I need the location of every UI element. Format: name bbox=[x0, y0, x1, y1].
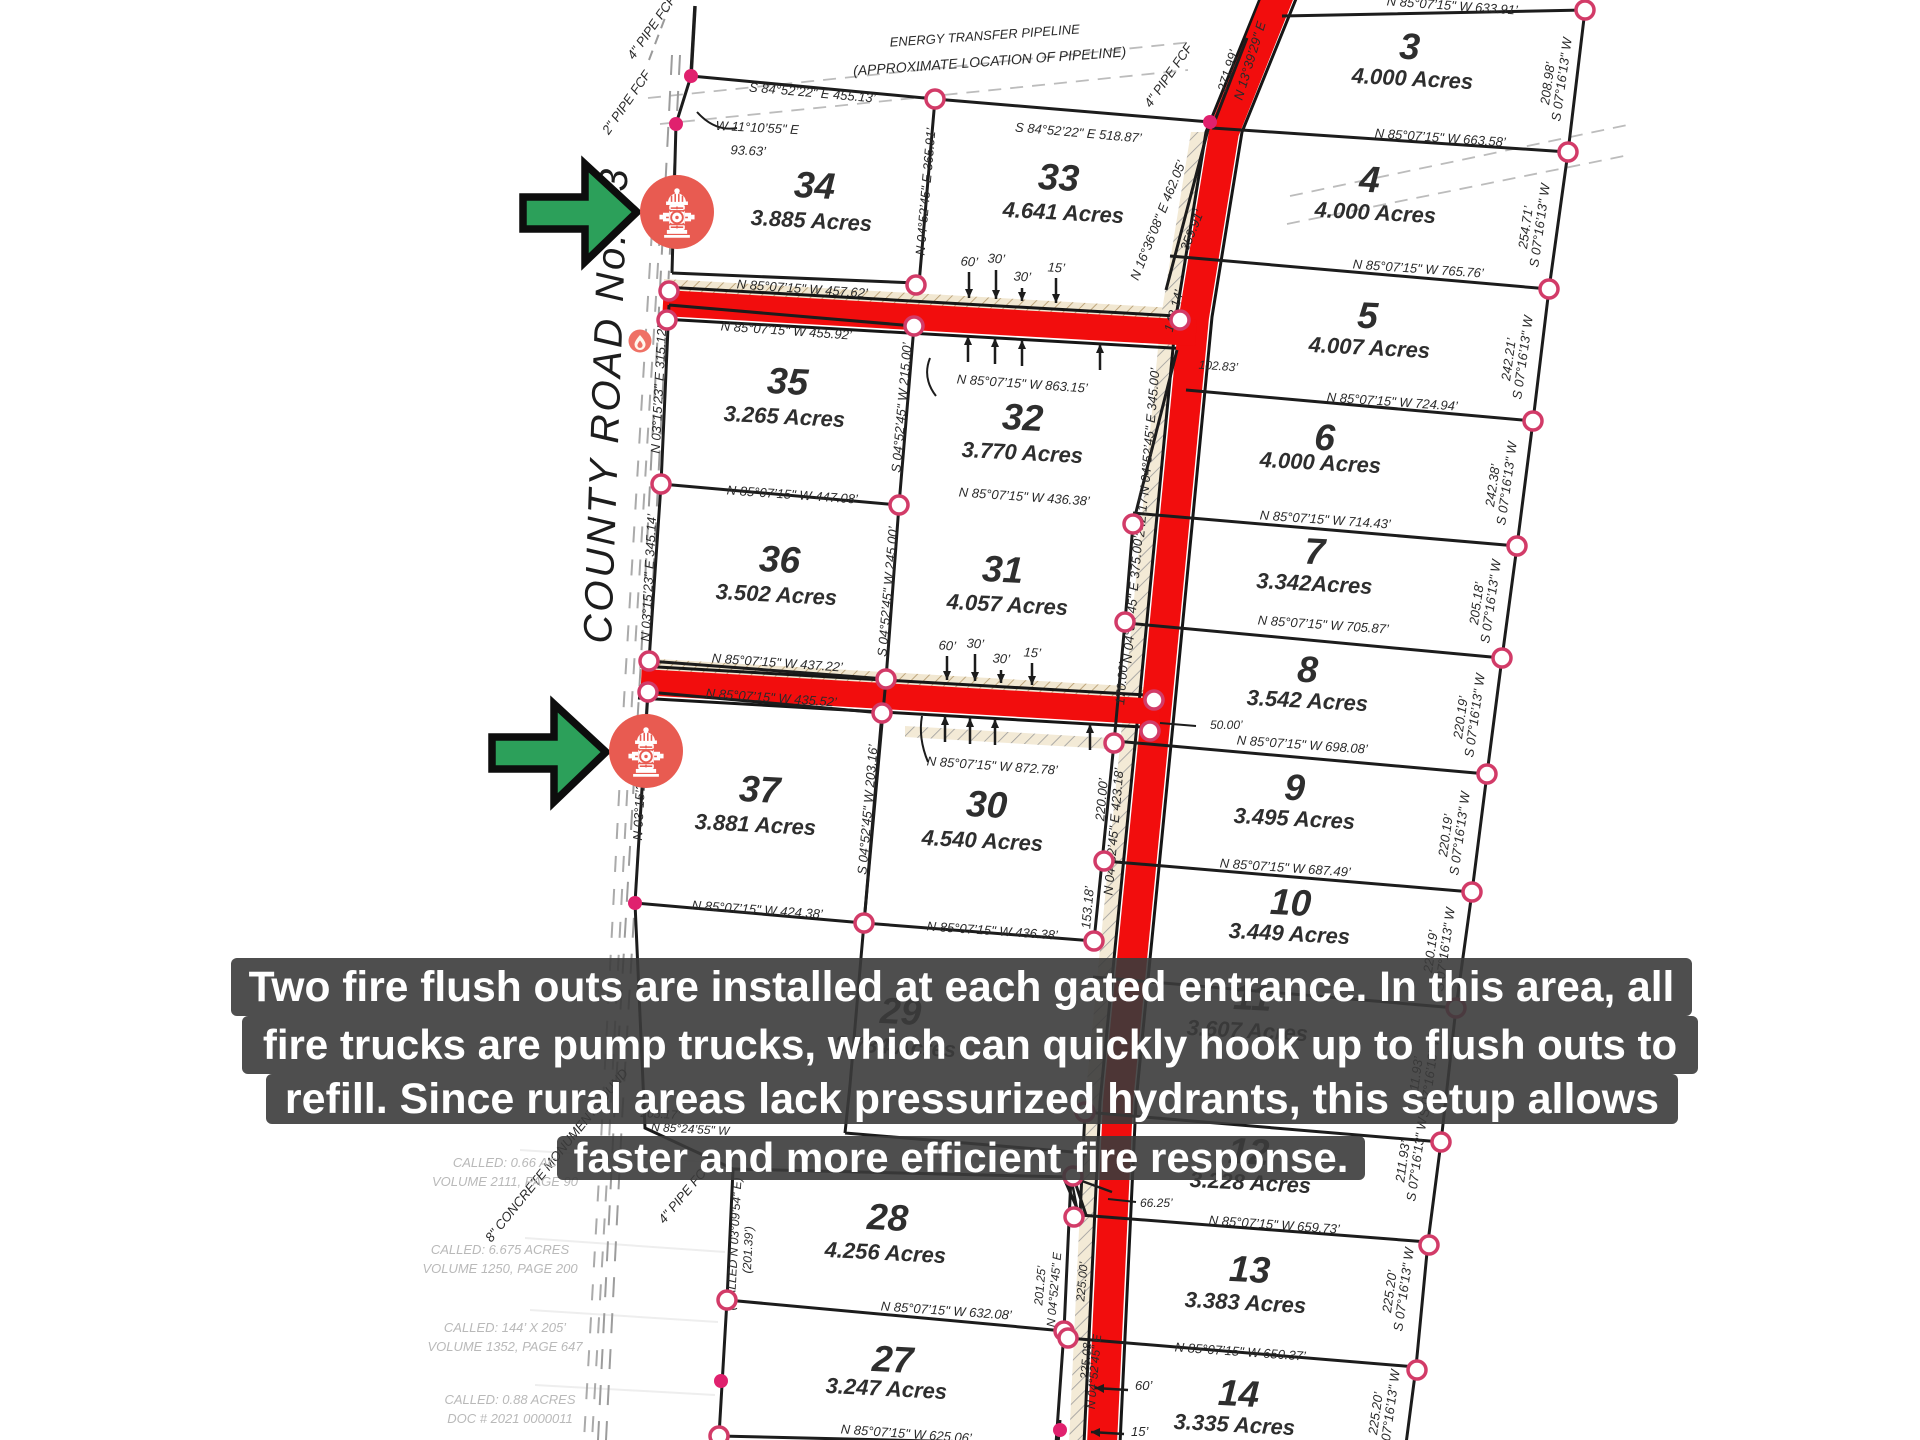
svg-text:34: 34 bbox=[793, 164, 836, 207]
svg-text:VOLUME 2111, PAGE 90: VOLUME 2111, PAGE 90 bbox=[432, 1174, 579, 1189]
svg-text:102.83’: 102.83’ bbox=[1198, 358, 1239, 375]
svg-text:CALLED: 0.66 AC: CALLED: 0.66 AC bbox=[453, 1155, 558, 1170]
svg-text:60’: 60’ bbox=[938, 637, 957, 653]
svg-text:36: 36 bbox=[758, 538, 802, 581]
svg-text:30’: 30’ bbox=[966, 635, 985, 651]
svg-text:35: 35 bbox=[766, 360, 811, 403]
svg-text:VOLUME 1250, PAGE 200: VOLUME 1250, PAGE 200 bbox=[422, 1261, 578, 1276]
svg-text:CALLED: 0.88 ACRES: CALLED: 0.88 ACRES bbox=[444, 1392, 575, 1407]
svg-text:DOC # 2021 0000011: DOC # 2021 0000011 bbox=[447, 1411, 573, 1426]
svg-text:15’: 15’ bbox=[1047, 259, 1066, 275]
svg-text:9: 9 bbox=[1283, 767, 1306, 809]
svg-text:5: 5 bbox=[1356, 295, 1380, 337]
svg-text:15’: 15’ bbox=[1131, 1424, 1149, 1439]
svg-text:14: 14 bbox=[1217, 1372, 1260, 1415]
svg-text:30’: 30’ bbox=[987, 250, 1006, 266]
svg-text:CALLED: 6.675 ACRES: CALLED: 6.675 ACRES bbox=[431, 1242, 570, 1257]
svg-text:faster and more efficient fire: faster and more efficient fire response. bbox=[574, 1134, 1349, 1181]
svg-text:fire trucks are pump trucks, w: fire trucks are pump trucks, which can q… bbox=[263, 1021, 1677, 1068]
svg-text:Two fire flush outs are instal: Two fire flush outs are installed at eac… bbox=[249, 964, 1675, 1011]
svg-text:4: 4 bbox=[1357, 158, 1381, 200]
svg-text:66.25’: 66.25’ bbox=[1140, 1196, 1173, 1210]
svg-text:30’: 30’ bbox=[992, 650, 1011, 666]
svg-text:VOLUME 1352, PAGE 647: VOLUME 1352, PAGE 647 bbox=[427, 1339, 583, 1354]
svg-text:15’: 15’ bbox=[1023, 644, 1042, 660]
svg-text:(201.39’): (201.39’) bbox=[740, 1226, 756, 1274]
svg-text:32: 32 bbox=[1001, 396, 1045, 439]
svg-text:8: 8 bbox=[1296, 649, 1319, 691]
svg-text:93.63’: 93.63’ bbox=[730, 142, 767, 159]
svg-text:60’: 60’ bbox=[960, 253, 979, 269]
svg-text:31: 31 bbox=[981, 548, 1024, 591]
svg-text:33: 33 bbox=[1037, 156, 1081, 199]
svg-text:13: 13 bbox=[1228, 1248, 1272, 1291]
svg-text:CALLED: 144’ X 205’: CALLED: 144’ X 205’ bbox=[444, 1320, 567, 1335]
svg-text:30’: 30’ bbox=[1013, 268, 1032, 284]
svg-text:37: 37 bbox=[738, 768, 784, 811]
svg-text:30: 30 bbox=[965, 783, 1009, 826]
svg-text:10: 10 bbox=[1269, 881, 1313, 924]
svg-text:28: 28 bbox=[865, 1196, 910, 1239]
svg-text:refill. Since rural areas lack: refill. Since rural areas lack pressuriz… bbox=[285, 1075, 1659, 1123]
svg-text:50.00’: 50.00’ bbox=[1210, 718, 1243, 732]
svg-text:60’: 60’ bbox=[1135, 1378, 1153, 1393]
svg-text:3: 3 bbox=[1398, 26, 1421, 68]
